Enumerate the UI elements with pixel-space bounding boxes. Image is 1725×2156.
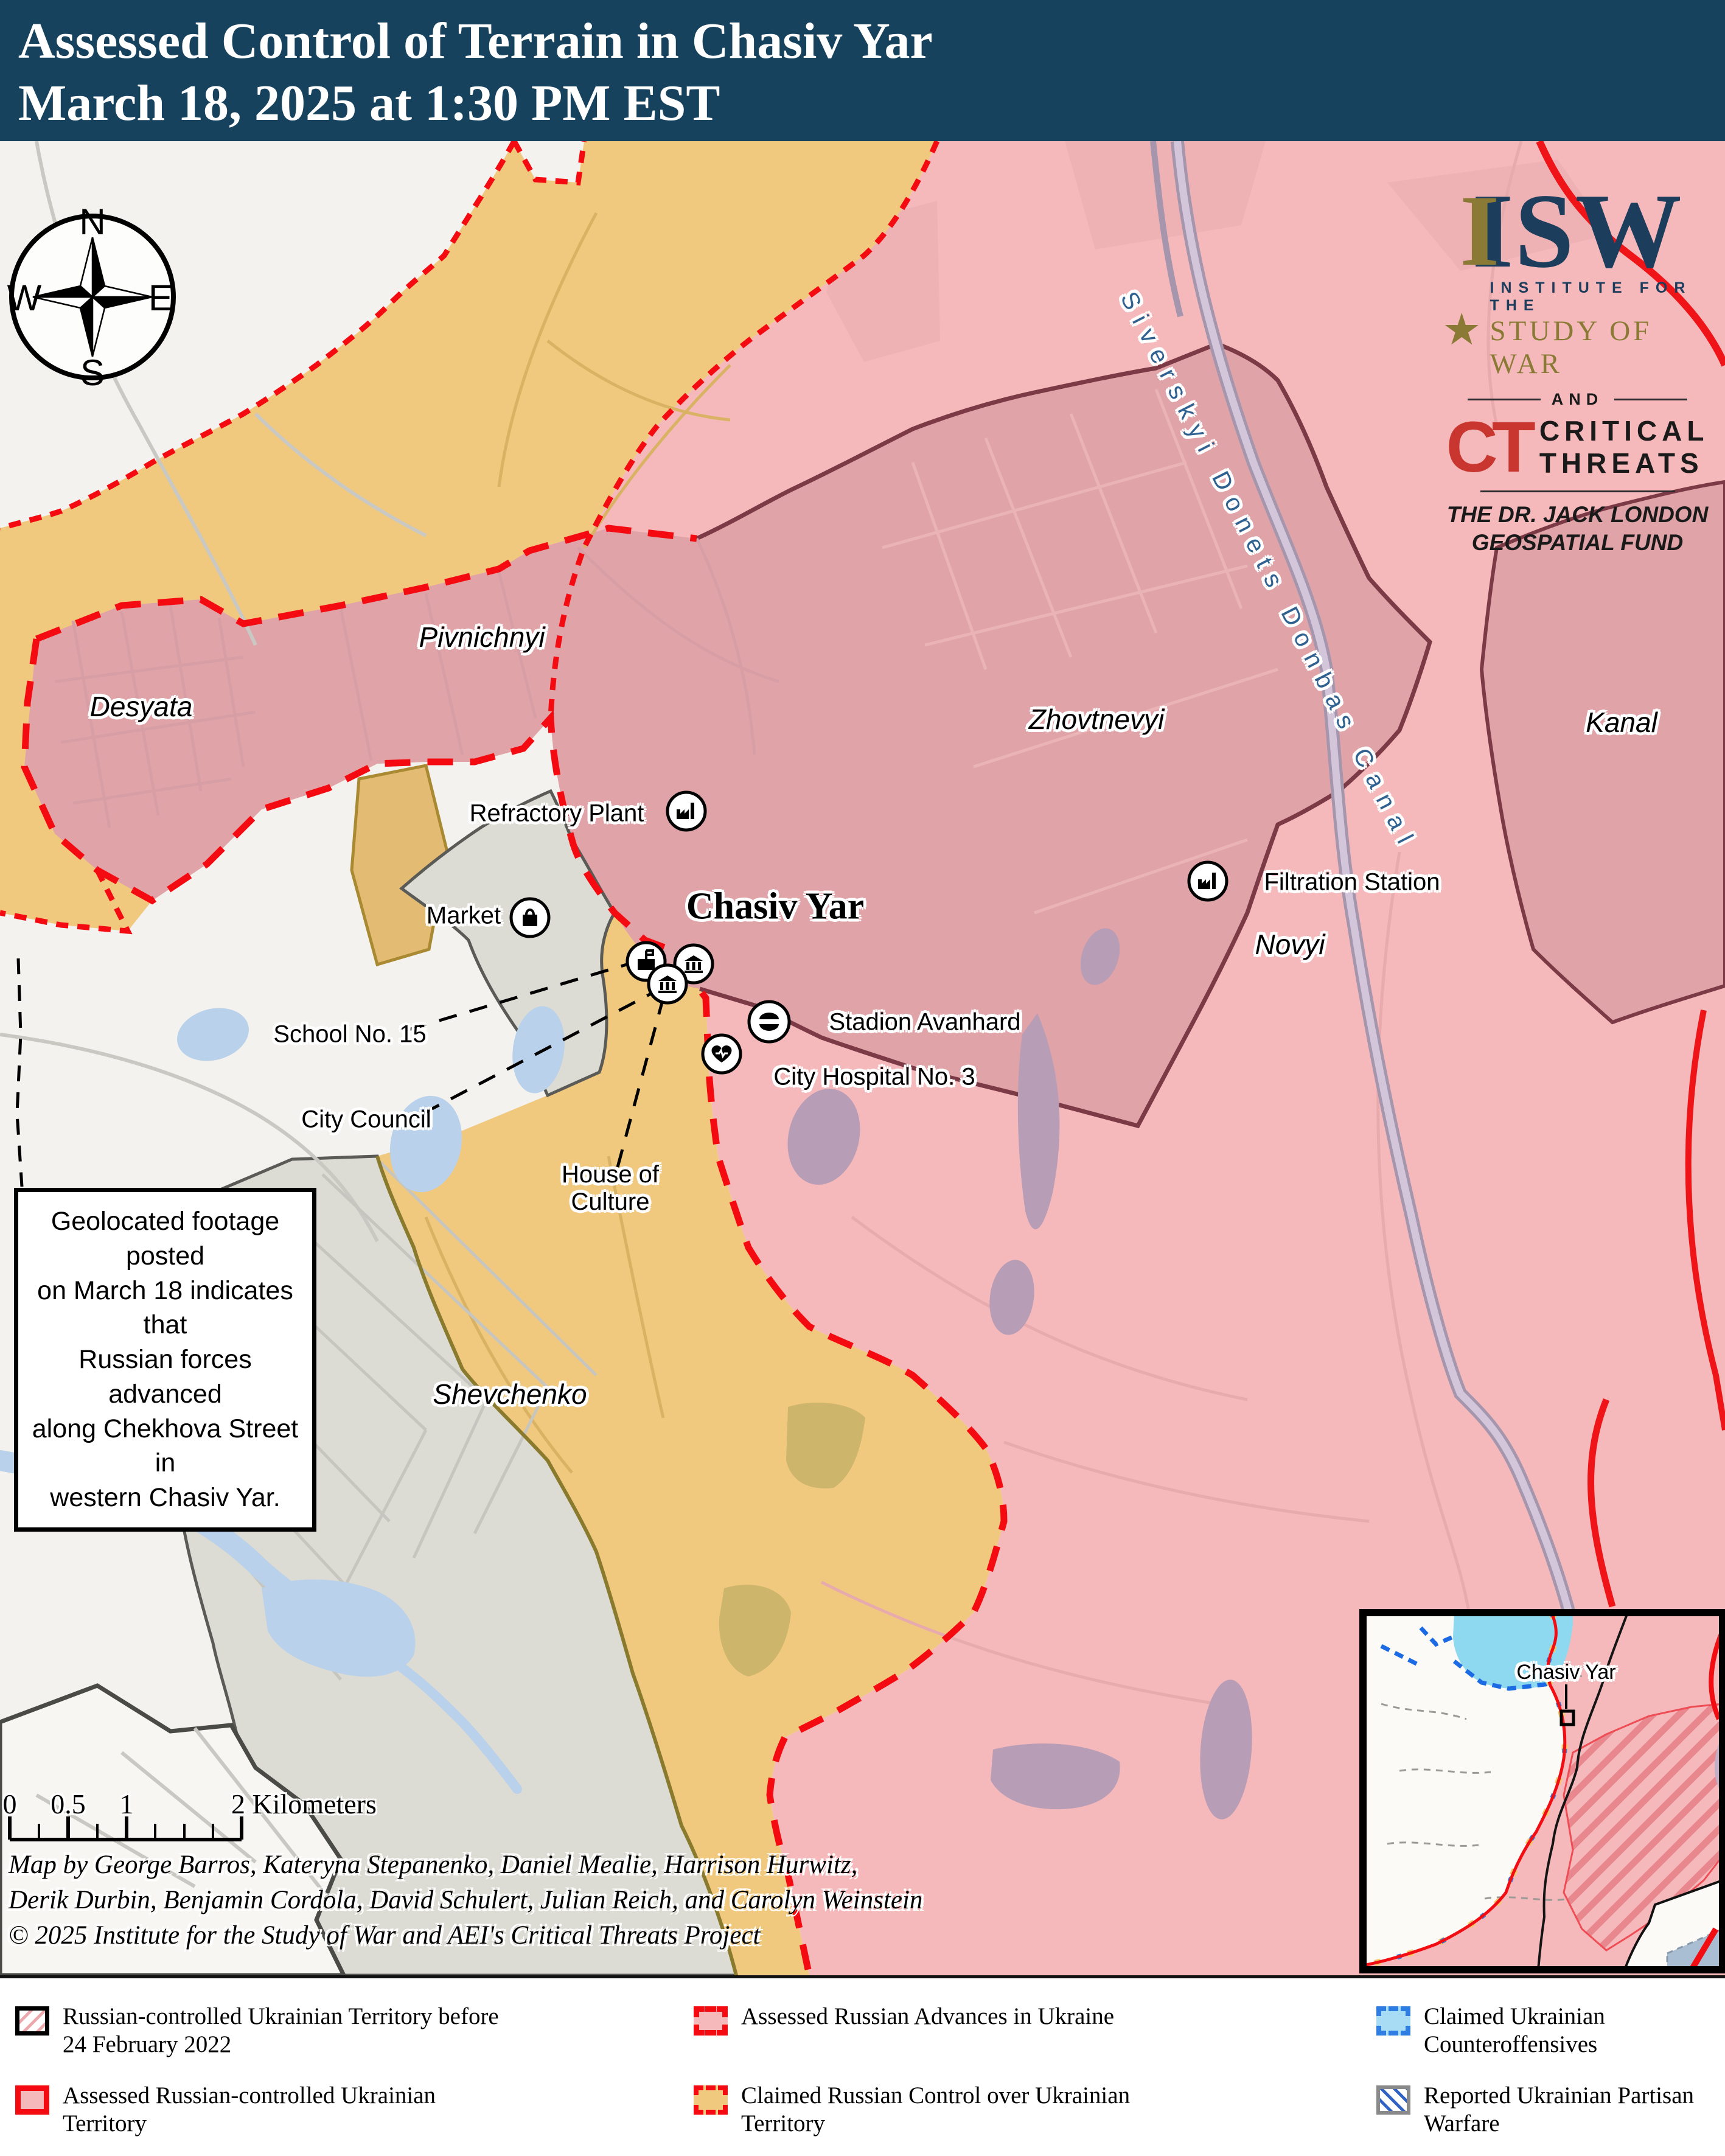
legend-label-pre2022: Russian-controlled Ukrainian Territory b…: [63, 2003, 525, 2059]
geospatial-fund-line2: GEOSPATIAL FUND: [1442, 529, 1713, 557]
map-title: Assessed Control of Terrain in Chasiv Ya…: [18, 16, 933, 67]
scale-tick-1: 1: [120, 1788, 134, 1820]
legend-swatch-partisan: [1376, 2085, 1410, 2115]
compass-west: W: [7, 277, 42, 318]
district-label-kanal: Kanal: [1586, 707, 1657, 739]
poi-label-hospital: City Hospital No. 3: [773, 1064, 975, 1091]
poi-label-city-council: City Council: [301, 1106, 431, 1134]
district-label-shevchenko: Shevchenko: [433, 1379, 587, 1411]
poi-label-market: Market: [427, 902, 501, 930]
district-label-pivnichnyi: Pivnichnyi: [419, 622, 545, 654]
poi-label-refractory-plant: Refractory Plant: [470, 800, 644, 828]
isw-acronym: ISW: [1472, 172, 1682, 290]
and-divider: AND: [1442, 390, 1713, 409]
district-label-desyata: Desyata: [90, 691, 193, 723]
legend-item-russian-controlled: Assessed Russian-controlled Ukrainian Te…: [15, 2082, 525, 2138]
district-label-zhovtnevyi: Zhovtnevyi: [1029, 704, 1164, 736]
legend-swatch-pre2022: [15, 2006, 49, 2036]
legend-label-advances: Assessed Russian Advances in Ukraine: [741, 2003, 1167, 2036]
logo-block: I ISW ★ INSTITUTE FOR THE STUDY OF WAR A…: [1442, 178, 1713, 557]
and-text: AND: [1552, 390, 1604, 409]
isw-study-of-war-line: STUDY OF WAR: [1490, 315, 1713, 380]
compass-south: S: [80, 352, 105, 393]
stadium-icon: [749, 1002, 789, 1042]
ct-mark: CT: [1446, 415, 1530, 480]
legend-swatch-advances: [694, 2006, 728, 2036]
legend: Russian-controlled Ukrainian Territory b…: [0, 1975, 1725, 2156]
scale-tick-2km: 2 Kilometers: [231, 1788, 377, 1820]
filtration-icon: [1189, 862, 1227, 900]
legend-swatch-counteroffensives: [1376, 2006, 1410, 2036]
legend-label-claimed-russian: Claimed Russian Control over Ukrainian T…: [741, 2082, 1167, 2138]
ct-line2: THREATS: [1539, 447, 1709, 480]
hospital-icon: [703, 1035, 741, 1073]
poi-label-school-15: School No. 15: [273, 1021, 426, 1048]
geospatial-fund-line1: THE DR. JACK LONDON: [1442, 501, 1713, 529]
poi-label-house-of-culture: House of Culture: [562, 1161, 659, 1216]
poi-label-filtration-station: Filtration Station: [1264, 869, 1440, 896]
compass-east: E: [148, 277, 173, 318]
legend-item-partisan: Reported Ukrainian Partisan Warfare: [1376, 2082, 1710, 2138]
legend-label-counteroffensives: Claimed Ukrainian Counteroffensives: [1424, 2003, 1710, 2059]
culture-icon: [649, 965, 686, 1003]
poi-label-stadion: Stadion Avanhard: [829, 1009, 1020, 1036]
compass-north: N: [79, 201, 105, 242]
factory-icon: [667, 792, 705, 830]
credits-line3: © 2025 Institute for the Study of War an…: [9, 1921, 760, 1950]
legend-swatch-claimed-russian: [694, 2085, 728, 2115]
credits-line1: Map by George Barros, Kateryna Stepanenk…: [9, 1850, 857, 1880]
scale-tick-0: 0: [3, 1788, 17, 1820]
legend-swatch-russian-controlled: [15, 2085, 49, 2115]
annotation-box: Geolocated footage posted on March 18 in…: [14, 1188, 316, 1532]
isw-star-icon: ★: [1442, 308, 1482, 352]
legend-item-counteroffensives: Claimed Ukrainian Counteroffensives: [1376, 2003, 1710, 2059]
isw-gold-accent: I: [1460, 180, 1499, 282]
legend-label-russian-controlled: Assessed Russian-controlled Ukrainian Te…: [63, 2082, 525, 2138]
title-bar: Assessed Control of Terrain in Chasiv Ya…: [0, 0, 1725, 141]
isw-logo: I ISW: [1472, 178, 1682, 284]
critical-threats-logo: CT CRITICAL THREATS: [1442, 415, 1713, 480]
map-subtitle-date: March 18, 2025 at 1:30 PM EST: [18, 78, 720, 129]
scale-tick-05: 0.5: [51, 1788, 86, 1820]
market-icon: [511, 899, 549, 937]
ct-line1: CRITICAL: [1539, 415, 1709, 447]
legend-item-pre2022: Russian-controlled Ukrainian Territory b…: [15, 2003, 525, 2059]
credits-line2: Derik Durbin, Benjamin Cordola, David Sc…: [9, 1885, 922, 1915]
isw-chasiv-yar-map-page: N S W E: [0, 0, 1725, 2156]
legend-label-partisan: Reported Ukrainian Partisan Warfare: [1424, 2082, 1710, 2138]
city-label-chasiv-yar: Chasiv Yar: [686, 885, 864, 927]
fund-divider: [1480, 490, 1675, 492]
inset-city-label: Chasiv Yar: [1516, 1661, 1615, 1684]
district-label-novyi: Novyi: [1255, 929, 1325, 961]
legend-item-claimed-russian: Claimed Russian Control over Ukrainian T…: [694, 2082, 1167, 2138]
legend-item-advances: Assessed Russian Advances in Ukraine: [694, 2003, 1167, 2036]
